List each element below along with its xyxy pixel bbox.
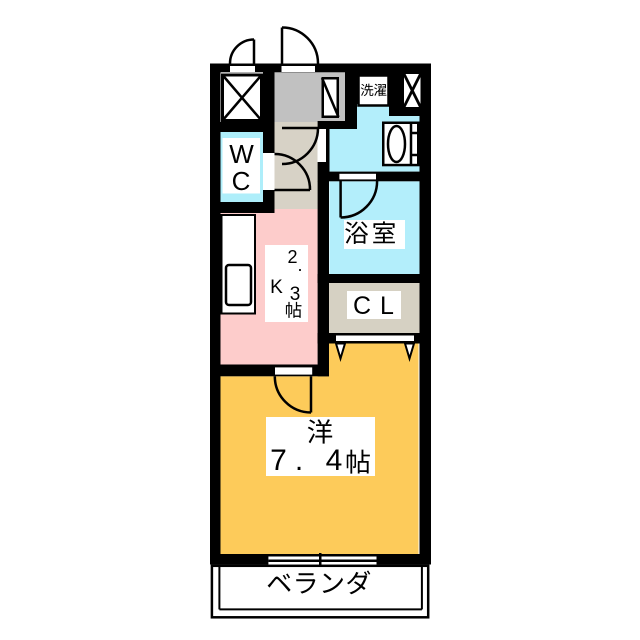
svg-text:4: 4 bbox=[326, 444, 343, 477]
svg-text:7: 7 bbox=[270, 444, 287, 477]
svg-text:K: K bbox=[270, 277, 283, 298]
svg-text:.: . bbox=[295, 444, 303, 477]
svg-text:.: . bbox=[297, 255, 302, 275]
svg-text:W: W bbox=[229, 139, 254, 169]
svg-text:C: C bbox=[232, 166, 251, 196]
svg-text:C: C bbox=[353, 292, 371, 320]
svg-text:2: 2 bbox=[287, 247, 297, 267]
svg-text:L: L bbox=[380, 292, 394, 320]
svg-text:3: 3 bbox=[290, 284, 301, 305]
